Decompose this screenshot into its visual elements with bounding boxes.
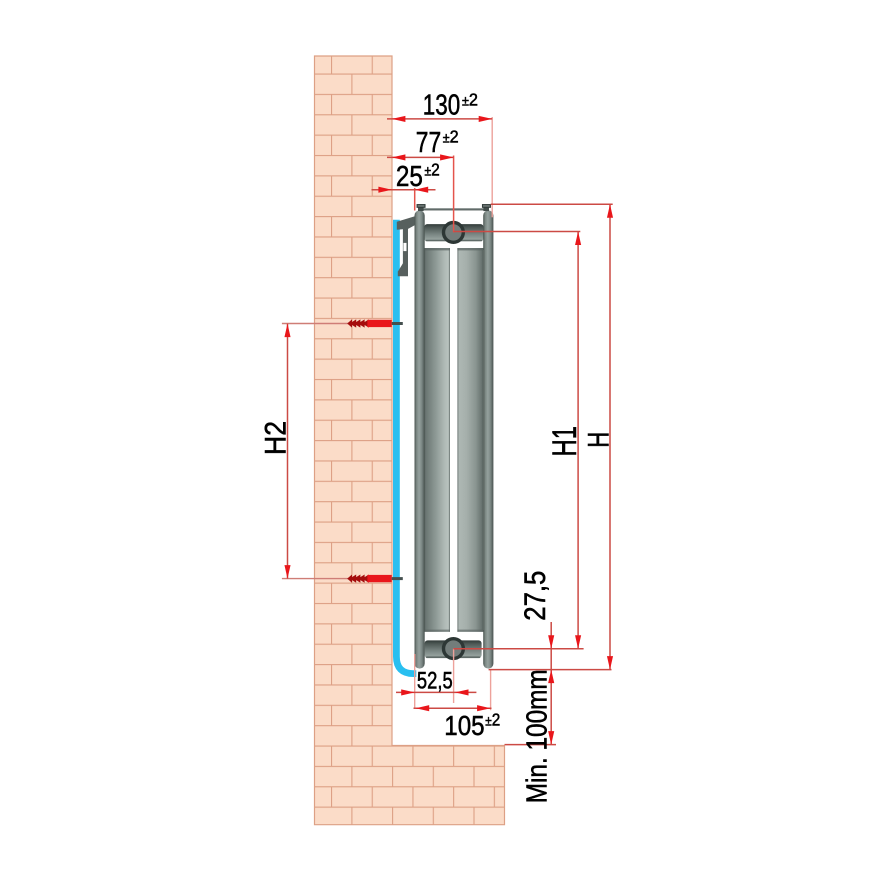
svg-text:±2: ±2 — [443, 126, 459, 146]
svg-text:±2: ±2 — [425, 160, 440, 180]
svg-text:77: 77 — [416, 127, 441, 159]
svg-text:Min. 100mm: Min. 100mm — [522, 669, 554, 803]
svg-text:H1: H1 — [546, 426, 584, 457]
svg-text:130: 130 — [423, 89, 460, 121]
svg-text:H2: H2 — [260, 421, 293, 455]
svg-text:±2: ±2 — [462, 90, 478, 110]
svg-text:52,5: 52,5 — [417, 668, 453, 695]
svg-text:25: 25 — [396, 161, 423, 193]
svg-text:27,5: 27,5 — [519, 571, 552, 621]
svg-text:±2: ±2 — [485, 710, 500, 730]
svg-text:H: H — [582, 432, 615, 448]
svg-text:105: 105 — [444, 710, 484, 741]
